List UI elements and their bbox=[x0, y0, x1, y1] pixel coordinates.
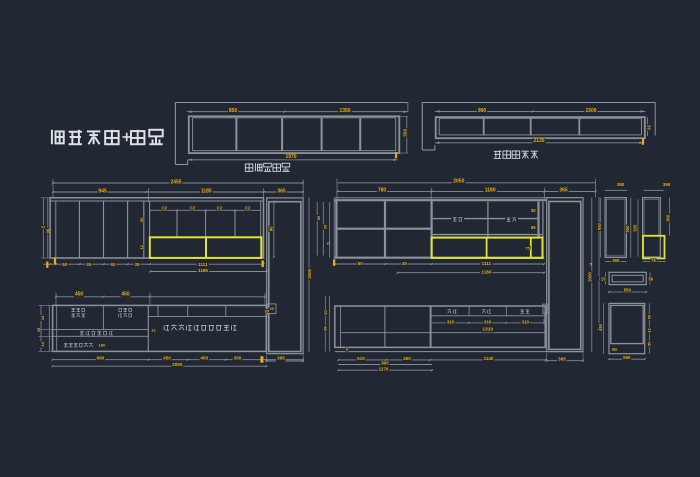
svg-text:365: 365 bbox=[559, 188, 568, 194]
svg-text:520: 520 bbox=[633, 224, 638, 232]
svg-text:96: 96 bbox=[322, 326, 327, 331]
svg-text:C2: C2 bbox=[190, 206, 196, 211]
svg-text:35: 35 bbox=[135, 262, 140, 267]
svg-text:350: 350 bbox=[612, 258, 620, 263]
svg-text:30: 30 bbox=[531, 208, 536, 213]
svg-text:25: 25 bbox=[269, 307, 273, 311]
svg-text:450: 450 bbox=[403, 356, 411, 361]
svg-text:360: 360 bbox=[665, 214, 670, 222]
svg-text:2050: 2050 bbox=[453, 179, 464, 185]
svg-text:310: 310 bbox=[484, 320, 492, 325]
svg-text:350: 350 bbox=[617, 182, 625, 187]
svg-text:90: 90 bbox=[612, 347, 617, 352]
svg-text:450: 450 bbox=[200, 356, 208, 361]
svg-text:850: 850 bbox=[229, 108, 238, 114]
svg-text:90: 90 bbox=[268, 226, 273, 231]
svg-text:2000: 2000 bbox=[588, 272, 593, 282]
svg-text:310: 310 bbox=[447, 320, 455, 325]
svg-text:365: 365 bbox=[277, 188, 286, 194]
svg-text:14: 14 bbox=[40, 341, 45, 346]
svg-text:450: 450 bbox=[121, 292, 130, 298]
svg-text:1180: 1180 bbox=[485, 188, 496, 194]
svg-text:550: 550 bbox=[402, 129, 407, 137]
svg-text:8: 8 bbox=[346, 348, 348, 352]
svg-text:50: 50 bbox=[358, 261, 363, 266]
svg-text:960: 960 bbox=[97, 356, 105, 361]
svg-text:310: 310 bbox=[522, 320, 530, 325]
svg-text:75: 75 bbox=[651, 258, 656, 263]
svg-text:350: 350 bbox=[234, 356, 242, 361]
svg-text:50: 50 bbox=[647, 341, 652, 346]
svg-text:1185: 1185 bbox=[198, 268, 208, 273]
svg-text:450: 450 bbox=[163, 356, 171, 361]
svg-text:35: 35 bbox=[323, 224, 328, 229]
svg-text:C2: C2 bbox=[161, 206, 167, 211]
svg-text:960: 960 bbox=[381, 361, 389, 366]
svg-text:450: 450 bbox=[75, 292, 84, 298]
svg-text:1111: 1111 bbox=[482, 261, 492, 266]
svg-text:1180: 1180 bbox=[481, 270, 491, 275]
svg-text:350: 350 bbox=[663, 182, 671, 187]
svg-text:50: 50 bbox=[139, 217, 144, 222]
svg-text:960: 960 bbox=[478, 108, 487, 114]
svg-text:C2: C2 bbox=[217, 206, 223, 211]
svg-text:92: 92 bbox=[111, 262, 116, 267]
svg-text:550: 550 bbox=[625, 225, 630, 233]
svg-text:1270: 1270 bbox=[379, 366, 389, 371]
svg-text:12: 12 bbox=[151, 328, 156, 333]
svg-text:45: 45 bbox=[402, 261, 407, 266]
svg-text:35: 35 bbox=[647, 125, 652, 130]
svg-text:1350: 1350 bbox=[339, 108, 350, 114]
svg-text:50: 50 bbox=[316, 215, 321, 220]
svg-text:35: 35 bbox=[86, 262, 91, 267]
svg-text:2130: 2130 bbox=[533, 138, 544, 144]
svg-text:1185: 1185 bbox=[201, 188, 212, 194]
svg-text:1970: 1970 bbox=[285, 154, 296, 160]
svg-text:90: 90 bbox=[647, 314, 652, 319]
svg-text:35: 35 bbox=[264, 309, 269, 314]
svg-text:30: 30 bbox=[323, 310, 328, 315]
svg-text:2000: 2000 bbox=[307, 268, 312, 278]
svg-text:1140: 1140 bbox=[484, 356, 494, 361]
svg-text:550: 550 bbox=[623, 355, 631, 360]
svg-text:C2: C2 bbox=[245, 206, 251, 211]
svg-text:12: 12 bbox=[647, 328, 652, 333]
svg-text:1500: 1500 bbox=[585, 108, 596, 114]
svg-text:34: 34 bbox=[40, 315, 45, 320]
svg-text:945: 945 bbox=[98, 188, 107, 194]
svg-text:510: 510 bbox=[357, 356, 365, 361]
svg-text:50: 50 bbox=[62, 262, 67, 267]
svg-text:75: 75 bbox=[525, 245, 530, 250]
svg-text:15: 15 bbox=[601, 276, 606, 281]
svg-text:365: 365 bbox=[277, 356, 285, 361]
svg-text:550: 550 bbox=[597, 222, 602, 230]
svg-text:35: 35 bbox=[36, 327, 41, 332]
svg-text:2050: 2050 bbox=[172, 362, 183, 367]
svg-text:450: 450 bbox=[598, 323, 603, 331]
svg-text:1310: 1310 bbox=[482, 327, 493, 333]
svg-text:1111: 1111 bbox=[198, 262, 208, 267]
svg-text:12: 12 bbox=[139, 244, 144, 249]
svg-text:365: 365 bbox=[558, 357, 566, 362]
svg-text:56: 56 bbox=[648, 277, 653, 282]
svg-text:550: 550 bbox=[624, 287, 632, 292]
svg-text:180: 180 bbox=[98, 342, 105, 347]
svg-text:2455: 2455 bbox=[170, 179, 181, 185]
svg-text:780: 780 bbox=[378, 188, 387, 194]
svg-text:95: 95 bbox=[531, 225, 536, 230]
